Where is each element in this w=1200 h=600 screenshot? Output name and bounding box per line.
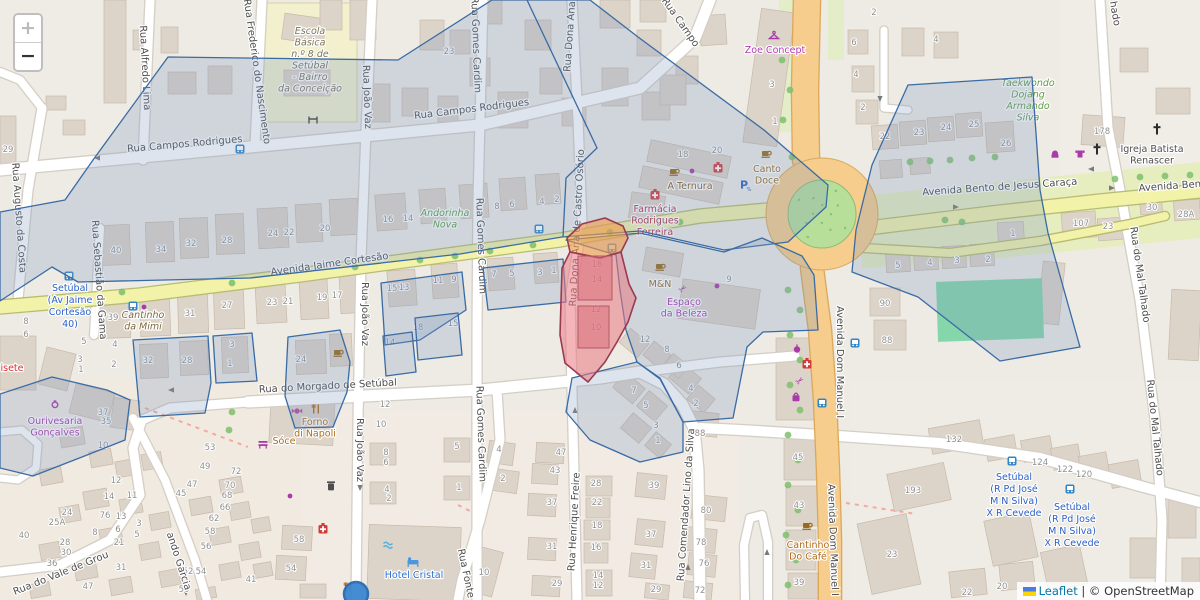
building (229, 501, 251, 520)
house-number: 10 (479, 568, 490, 578)
house-number: 4 (496, 445, 501, 455)
map-attribution: Leaflet | © OpenStreetMap (1017, 582, 1200, 600)
dot-icon (142, 305, 147, 310)
building (1120, 48, 1148, 72)
building (104, 0, 126, 103)
tree (780, 117, 787, 124)
house-number: 8 (92, 528, 97, 538)
house-number: 62 (209, 514, 220, 524)
tree (785, 482, 792, 489)
house-number: 53 (205, 443, 216, 453)
house-number: 29 (552, 579, 563, 589)
poi-label: da Mimi (124, 322, 162, 333)
house-number: 2 (860, 103, 865, 113)
tree (797, 357, 804, 364)
tree (1162, 173, 1169, 180)
building (39, 541, 61, 560)
house-number: 5 (81, 337, 86, 347)
building (1168, 289, 1200, 360)
tree (787, 87, 794, 94)
building (251, 517, 271, 534)
building (1156, 88, 1190, 114)
house-number: 45 (793, 453, 804, 463)
house-number: 8 (23, 317, 28, 327)
cafe-icon (802, 523, 812, 530)
house-number: 68 (222, 491, 233, 501)
building (139, 541, 161, 560)
house-number: 72 (695, 586, 706, 596)
house-number: 47 (187, 480, 198, 490)
tree (783, 532, 790, 539)
house-number: 58 (205, 527, 216, 537)
zoom-control: + − (13, 13, 43, 72)
house-number: 132 (946, 435, 962, 445)
house-number: 12 (111, 476, 122, 486)
house-number: 2 (500, 474, 505, 484)
poi-label: Igreja Batista (1120, 144, 1183, 155)
house-number: 20 (997, 582, 1008, 592)
house-number: 3 (136, 519, 141, 529)
house-number: 41 (246, 575, 257, 585)
tree (779, 57, 786, 64)
house-number: 29 (651, 585, 662, 595)
house-number: 3 (769, 80, 774, 90)
dot-icon (288, 494, 293, 499)
marker-icon (344, 582, 368, 600)
house-number: 8 (383, 448, 388, 458)
house-number: 28 (591, 479, 602, 489)
house-number: 39 (649, 481, 660, 491)
building (300, 584, 326, 598)
osm-link[interactable]: OpenStreetMap (1104, 584, 1194, 598)
building (239, 541, 261, 560)
tree (226, 427, 233, 434)
house-number: 78 (696, 538, 707, 548)
tree (785, 582, 792, 589)
house-number: 19 (317, 293, 328, 303)
house-number: 58 (294, 535, 305, 545)
tree (785, 432, 792, 439)
transit-stop-label: Setúbal (52, 283, 88, 294)
transit-stop-label: X R Cevede (987, 508, 1042, 519)
transit-stop-label: Setúbal (996, 472, 1032, 483)
house-number: 3 (77, 355, 82, 365)
house-number: 21 (283, 297, 294, 307)
overlay-polygon (383, 332, 416, 376)
house-number: 21 (114, 538, 125, 548)
transit-stop-label: (R Pd José (990, 484, 1038, 495)
house-number: 2 (871, 8, 876, 18)
selected-building (578, 306, 609, 348)
zoom-in-button[interactable]: + (15, 15, 41, 42)
poi-label: Do Café (789, 552, 827, 563)
poi-label: Escola (295, 26, 326, 37)
house-number: 43 (794, 501, 805, 511)
transit-stop-label: X R Cevede (1045, 538, 1100, 549)
overlay-polygon (483, 259, 566, 310)
building (161, 27, 178, 53)
house-number: 12 (593, 581, 604, 591)
house-number: 18 (592, 521, 603, 531)
poi-label: di Napoli (294, 429, 336, 440)
house-number: 124 (1032, 458, 1048, 468)
map[interactable]: P%✂✂292326423141820222324252617810723302… (0, 0, 1200, 600)
house-number: 90 (880, 299, 891, 309)
house-number: 23 (887, 550, 898, 560)
bus-icon (818, 399, 827, 408)
leaflet-link[interactable]: Leaflet (1039, 584, 1078, 598)
house-number: 30 (1147, 203, 1158, 213)
house-number: 39 (794, 578, 805, 588)
house-number: 47 (83, 582, 94, 592)
house-number: 23 (1103, 222, 1114, 232)
transit-stop-label: M N Silva) (1048, 526, 1096, 537)
building (63, 120, 85, 135)
house-number: 4 (933, 35, 938, 45)
attribution-separator: | © (1078, 584, 1104, 598)
house-number: 31 (185, 309, 196, 319)
transit-stop-label: 40) (62, 319, 78, 330)
house-number: 23 (267, 298, 278, 308)
building (219, 561, 241, 580)
house-number: 28 (60, 538, 71, 548)
building (0, 116, 16, 164)
tree (1112, 176, 1119, 183)
house-number: 178 (1094, 127, 1110, 137)
building (984, 512, 1039, 567)
transit-stop-label: Setúbal (1054, 502, 1090, 513)
poi-label: Sóce (273, 436, 296, 447)
house-number: 76 (699, 559, 710, 569)
house-number: 5 (134, 530, 139, 540)
house-number: 37 (547, 498, 558, 508)
house-number: 39 (108, 313, 119, 323)
house-number: 47 (556, 448, 567, 458)
tree (1137, 174, 1144, 181)
house-number: 10 (376, 420, 387, 430)
house-number: 22 (962, 588, 973, 598)
house-number: 16 (591, 543, 602, 553)
selected-building (578, 256, 612, 300)
bus-icon (1066, 485, 1075, 494)
house-number: 11 (127, 491, 138, 501)
house-number: 25A (49, 518, 66, 528)
house-number: 5 (454, 442, 459, 452)
landuse-area (828, 0, 844, 60)
house-number: 12 (380, 400, 391, 410)
house-number: 24 (62, 508, 73, 518)
poi-label: Hotel Cristal (385, 570, 444, 581)
poi-label: Cantinho (787, 540, 830, 551)
street-label: Rua João Vaz (354, 418, 365, 482)
tree (787, 332, 794, 339)
tree (229, 280, 236, 287)
house-number: 49 (200, 462, 211, 472)
house-number: 122 (1057, 465, 1073, 475)
transit-stop-label: M N Silva) (990, 496, 1038, 507)
house-number: 76 (100, 511, 111, 521)
transit-stop-label: (Av Jaime (48, 295, 93, 306)
poi-label: Zoe Concept (745, 45, 806, 56)
house-number: 36 (47, 559, 58, 569)
house-number: 66 (220, 503, 231, 513)
house-number: 1 (772, 117, 777, 127)
trash-icon (327, 481, 335, 490)
poi-label: isete (0, 363, 23, 374)
house-number: 45 (176, 489, 187, 499)
house-number: 37 (646, 530, 657, 540)
house-number: 31 (116, 563, 127, 573)
house-number: 27 (222, 301, 233, 311)
building (189, 496, 213, 516)
road (805, 0, 807, 160)
house-number: 80 (701, 506, 712, 516)
street-label: Avenida Dom Manuel I (834, 306, 845, 418)
house-number: 54 (196, 567, 207, 577)
tree (797, 407, 804, 414)
map-canvas[interactable]: P%✂✂292326423141820222324252617810723302… (0, 0, 1200, 600)
house-number: 70 (225, 481, 236, 491)
house-number: 6 (115, 525, 120, 535)
house-number: 6 (23, 330, 28, 340)
house-number: 193 (905, 486, 921, 496)
house-number: 2 (111, 360, 116, 370)
bus-icon (1008, 457, 1017, 466)
building (149, 511, 171, 530)
house-number: 31 (641, 561, 652, 571)
tree (119, 289, 126, 296)
poi-label: Cantinho (122, 310, 165, 321)
house-number: 31 (547, 542, 558, 552)
house-number: 54 (286, 564, 297, 574)
house-number: 120 (1076, 470, 1092, 480)
building (902, 28, 924, 56)
house-number: 22 (592, 498, 603, 508)
poi-label: Básica (295, 38, 326, 49)
building (109, 576, 133, 596)
house-number: 29 (3, 145, 14, 155)
house-number: 72 (231, 467, 242, 477)
overlay-polygon (415, 313, 462, 360)
transit-stop-label: Cortesão (49, 307, 92, 318)
poi-label: Renascer (1130, 156, 1174, 167)
house-number: 1 (78, 365, 83, 375)
house-number: 17 (332, 291, 343, 301)
building (370, 482, 396, 504)
overlay-polygon (133, 336, 211, 417)
house-number: 2 (386, 494, 391, 504)
house-number: 1 (456, 483, 461, 493)
tree (229, 409, 236, 416)
house-number: 43 (550, 466, 561, 476)
house-number: 40 (19, 531, 30, 541)
house-number: 88 (882, 336, 893, 346)
street-label: Rua João Vaz (359, 282, 370, 346)
house-number: 30 (61, 548, 72, 558)
tree (1187, 172, 1194, 179)
tree (787, 382, 794, 389)
house-number: 56 (201, 542, 212, 552)
ukraine-flag-icon (1023, 587, 1036, 596)
house-number: 4 (112, 340, 117, 350)
transit-stop-label: (R Pd José (1048, 514, 1096, 525)
house-number: 14 (104, 492, 115, 502)
building (46, 96, 66, 110)
bus-icon (851, 339, 860, 348)
zoom-out-button[interactable]: − (15, 42, 41, 70)
house-number: 13 (116, 512, 127, 522)
house-number: 4 (853, 70, 858, 80)
house-number: 14 (593, 571, 604, 581)
house-number: 6 (383, 458, 388, 468)
house-number: 107 (1073, 219, 1089, 229)
house-number: 6 (851, 38, 856, 48)
house-number: 28A (1178, 210, 1195, 220)
overlay-polygon (213, 333, 257, 383)
